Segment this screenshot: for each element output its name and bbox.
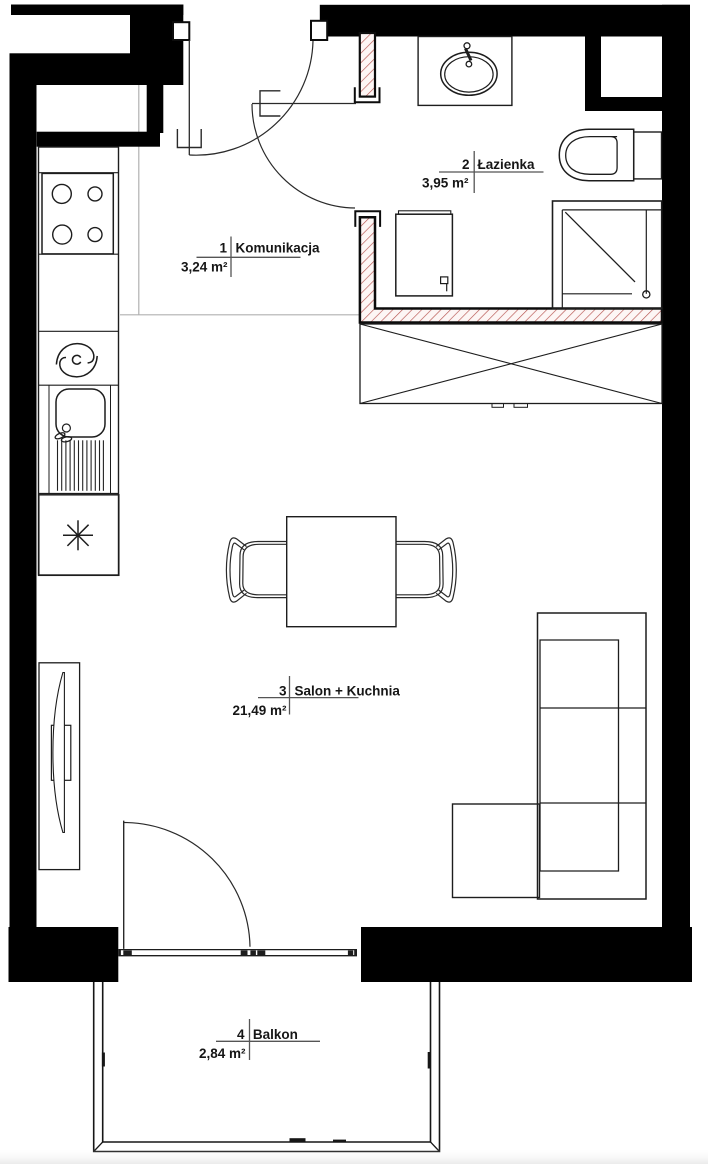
svg-text:1: 1 (219, 241, 227, 256)
svg-text:Łazienka: Łazienka (478, 157, 536, 172)
svg-text:21,49 m²: 21,49 m² (232, 703, 287, 718)
svg-text:3,24 m²: 3,24 m² (181, 260, 228, 275)
svg-text:2,84 m²: 2,84 m² (199, 1046, 246, 1061)
svg-text:3: 3 (279, 684, 287, 699)
svg-text:Salon + Kuchnia: Salon + Kuchnia (295, 684, 401, 699)
svg-text:4: 4 (237, 1027, 245, 1042)
svg-text:2: 2 (462, 157, 470, 172)
svg-text:3,95 m²: 3,95 m² (422, 176, 469, 191)
svg-text:Balkon: Balkon (253, 1027, 298, 1042)
svg-text:Komunikacja: Komunikacja (236, 241, 321, 256)
